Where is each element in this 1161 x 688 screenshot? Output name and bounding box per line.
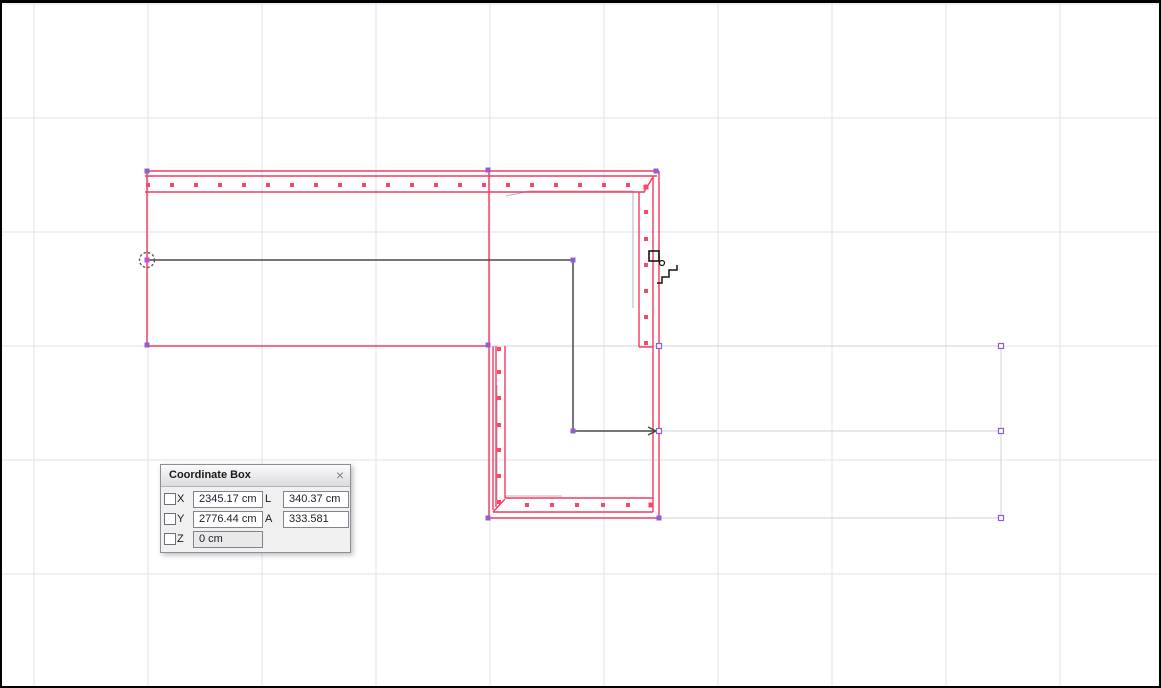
wall-insulation-dot bbox=[194, 183, 198, 187]
wall-insulation-dot bbox=[146, 183, 150, 187]
z-coordinate-field: 0 cm bbox=[193, 531, 263, 548]
wall-insulation-dot bbox=[242, 183, 246, 187]
z-label: Z bbox=[177, 533, 187, 545]
wall-insulation-dot bbox=[497, 396, 501, 400]
x-label: X bbox=[177, 493, 187, 505]
wall-insulation-dot bbox=[497, 370, 501, 374]
wall-insulation-dot bbox=[602, 183, 606, 187]
angle-field[interactable]: 333.581 bbox=[283, 511, 349, 528]
wall-insulation-dot bbox=[626, 183, 630, 187]
wall-insulation-dot bbox=[497, 423, 501, 427]
wall-insulation-dot bbox=[506, 183, 510, 187]
wall-insulation-dot bbox=[578, 183, 582, 187]
wall-insulation-dot bbox=[218, 183, 222, 187]
selection-handle[interactable] bbox=[486, 168, 491, 173]
wall-insulation-dot bbox=[644, 289, 648, 293]
wall-insulation-dot bbox=[482, 183, 486, 187]
selection-handle[interactable] bbox=[657, 516, 662, 521]
palette-titlebar[interactable]: Coordinate Box × bbox=[161, 465, 350, 487]
l-label: L bbox=[265, 493, 275, 505]
stairs-cursor-icon bbox=[657, 265, 677, 283]
wall-insulation-dot bbox=[497, 474, 501, 478]
wall-insulation-dot bbox=[410, 183, 414, 187]
cursor-node-icon bbox=[649, 251, 659, 261]
wall-insulation-dot bbox=[497, 347, 501, 351]
wall-insulation-dot bbox=[644, 263, 648, 267]
wall-insulation-dot bbox=[266, 183, 270, 187]
selection-handle[interactable] bbox=[571, 429, 576, 434]
wall-insulation-dot bbox=[626, 503, 630, 507]
wall-insulation-dot bbox=[644, 185, 649, 190]
selection-handle[interactable] bbox=[145, 169, 150, 174]
z-checkbox[interactable] bbox=[164, 533, 176, 545]
wall-insulation-dot bbox=[530, 183, 534, 187]
wall-insulation-dot bbox=[575, 503, 579, 507]
coordinate-box-palette: Coordinate Box × X 2345.17 cm L 340.37 c… bbox=[160, 464, 351, 553]
wall-insulation-dot bbox=[497, 448, 501, 452]
wall-insulation-dot bbox=[434, 183, 438, 187]
wall-insulation-dot bbox=[644, 315, 648, 319]
selection-handle[interactable] bbox=[486, 516, 491, 521]
wall-insulation-dot bbox=[314, 183, 318, 187]
wall-insulation-dot bbox=[290, 183, 294, 187]
wall-insulation-dot bbox=[458, 183, 462, 187]
wall-insulation-dot bbox=[362, 183, 366, 187]
wall-insulation-dot bbox=[550, 503, 554, 507]
wall-insulation-dot bbox=[649, 503, 654, 508]
wall-insulation-dot bbox=[601, 503, 605, 507]
selection-handle[interactable] bbox=[486, 343, 491, 348]
selection-handle[interactable] bbox=[654, 169, 659, 174]
y-checkbox[interactable] bbox=[164, 513, 176, 525]
x-coordinate-field[interactable]: 2345.17 cm bbox=[193, 491, 263, 508]
selection-handle[interactable] bbox=[571, 258, 576, 263]
length-field[interactable]: 340.37 cm bbox=[283, 491, 349, 508]
y-coordinate-field[interactable]: 2776.44 cm bbox=[193, 511, 263, 528]
wall-insulation-dot bbox=[497, 500, 501, 504]
a-label: A bbox=[265, 513, 275, 525]
x-checkbox[interactable] bbox=[164, 493, 176, 505]
wall-insulation-dot bbox=[554, 183, 558, 187]
selection-handle[interactable] bbox=[999, 516, 1004, 521]
wall-insulation-dot bbox=[644, 341, 648, 345]
y-label: Y bbox=[177, 513, 187, 525]
close-icon[interactable]: × bbox=[336, 467, 344, 483]
wall-insulation-dot bbox=[170, 183, 174, 187]
wall-insulation-dot bbox=[644, 237, 648, 241]
selection-handle[interactable] bbox=[145, 343, 150, 348]
selection-handle[interactable] bbox=[999, 429, 1004, 434]
palette-title: Coordinate Box bbox=[169, 469, 251, 481]
wall-insulation-dot bbox=[338, 183, 342, 187]
selection-handle[interactable] bbox=[999, 344, 1004, 349]
floor-plan-window: Coordinate Box × X 2345.17 cm L 340.37 c… bbox=[0, 0, 1161, 688]
drawing-canvas[interactable] bbox=[0, 0, 1161, 688]
wall-insulation-dot bbox=[644, 210, 648, 214]
wall-insulation-dot bbox=[525, 503, 529, 507]
selection-handle[interactable] bbox=[657, 344, 662, 349]
cursor-hook-icon bbox=[660, 261, 665, 266]
wall-insulation-dot bbox=[386, 183, 390, 187]
selection-handle[interactable] bbox=[657, 429, 662, 434]
origin-node[interactable] bbox=[145, 258, 150, 263]
